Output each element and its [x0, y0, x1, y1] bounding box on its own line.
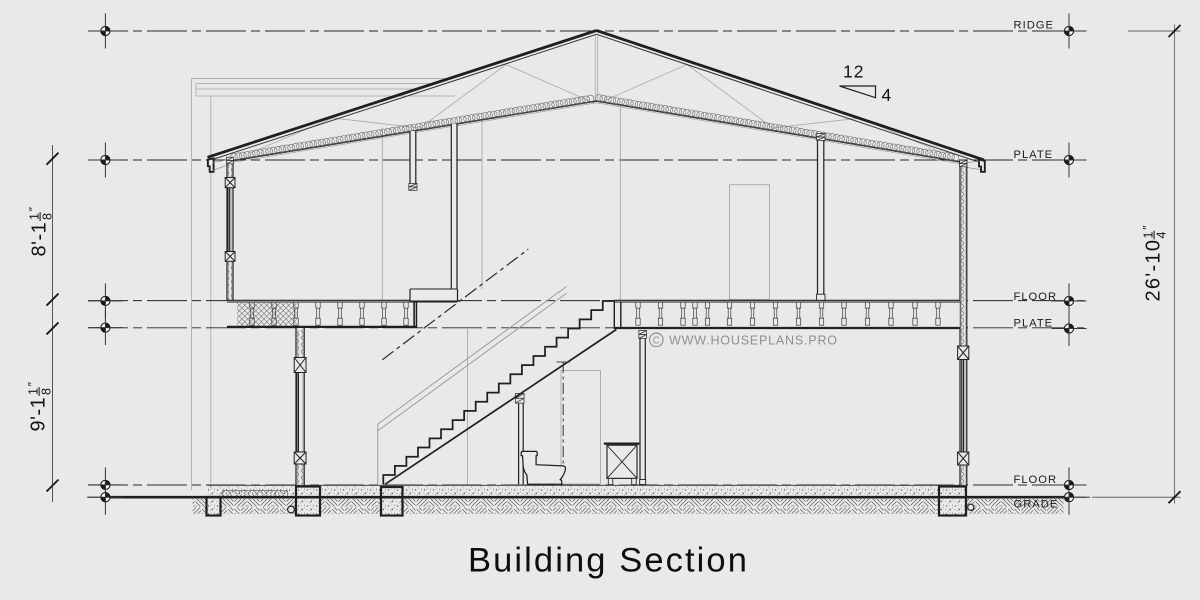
- svg-text:4: 4: [882, 85, 892, 105]
- svg-text:8: 8: [41, 213, 55, 220]
- svg-text:1: 1: [1141, 232, 1155, 239]
- svg-text:1: 1: [26, 388, 40, 395]
- svg-text:FLOOR: FLOOR: [1014, 291, 1058, 303]
- svg-text:8'-1: 8'-1: [29, 222, 51, 257]
- svg-text:26'-10: 26'-10: [1143, 239, 1165, 302]
- svg-text:″: ″: [1140, 225, 1154, 230]
- svg-text:GRADE: GRADE: [1014, 499, 1059, 511]
- svg-text:C: C: [653, 335, 660, 346]
- svg-text:4: 4: [1155, 232, 1169, 239]
- svg-text:Building Section: Building Section: [468, 542, 749, 580]
- svg-text:RIDGE: RIDGE: [1014, 19, 1054, 31]
- svg-text:12: 12: [843, 62, 864, 82]
- svg-text:FLOOR: FLOOR: [1014, 474, 1058, 486]
- svg-text:9'-1: 9'-1: [28, 397, 50, 432]
- svg-text:PLATE: PLATE: [1014, 318, 1054, 330]
- svg-text:WWW.HOUSEPLANS.PRO: WWW.HOUSEPLANS.PRO: [669, 333, 838, 347]
- svg-text:″: ″: [26, 206, 40, 211]
- svg-text:1: 1: [27, 213, 41, 220]
- svg-text:PLATE: PLATE: [1014, 149, 1054, 161]
- svg-text:8: 8: [40, 388, 54, 395]
- svg-text:″: ″: [25, 381, 39, 386]
